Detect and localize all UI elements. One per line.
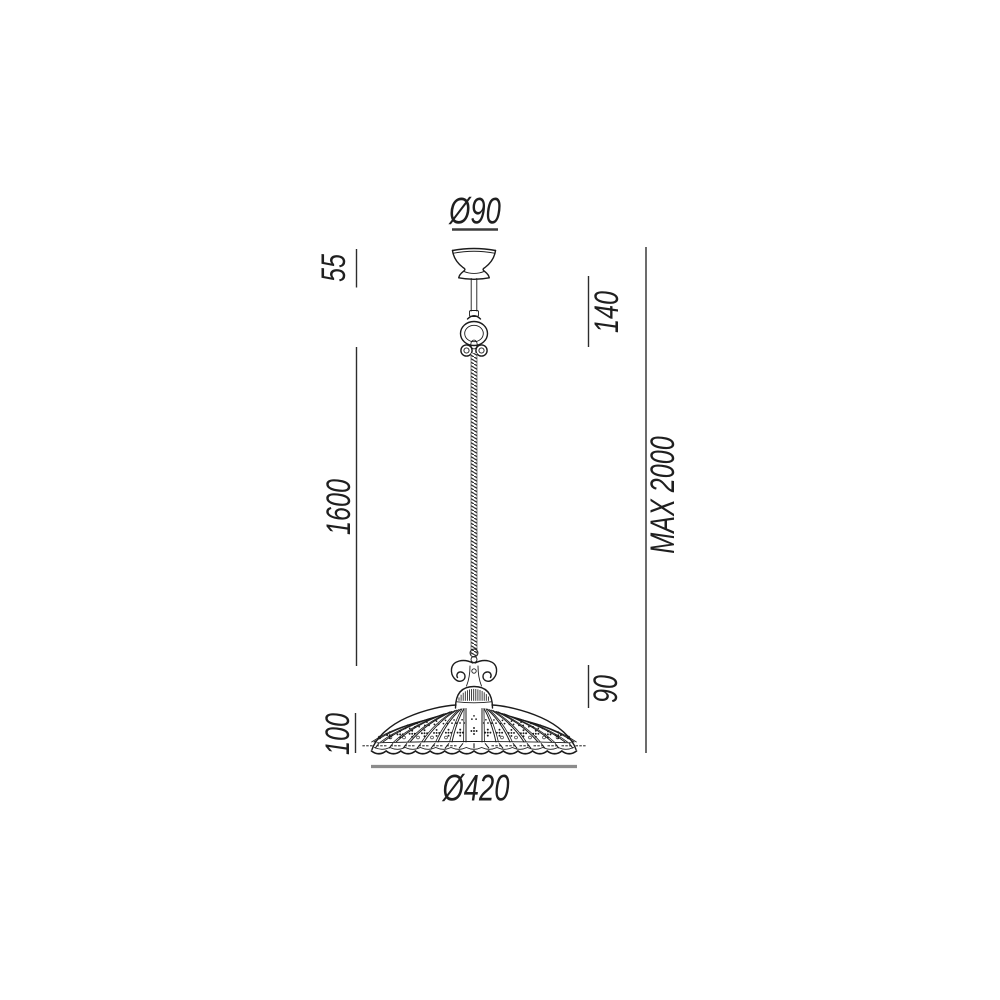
shade-ribs — [372, 709, 577, 743]
label-max-height: MAX 2000 — [644, 436, 682, 554]
shade-scalloped-edge — [372, 748, 577, 754]
lamp-shade — [362, 705, 585, 754]
shade-band-pattern — [362, 743, 585, 748]
label-shade-diameter: Ø420 — [442, 768, 510, 809]
label-suspension-upper: 140 — [588, 291, 626, 333]
label-shade-fitting-height: 90 — [587, 675, 625, 703]
shade-cap — [456, 687, 493, 709]
hanging-ring — [461, 316, 488, 356]
ceiling-canopy — [453, 249, 496, 280]
suspension-cable — [471, 353, 477, 656]
cap-hatch — [459, 689, 488, 701]
label-cable-length: 1600 — [320, 479, 358, 535]
label-canopy-height: 55 — [315, 254, 353, 282]
label-shade-height: 100 — [319, 713, 357, 755]
dimension-labels: Ø90 55 140 1600 MAX 2000 90 100 Ø420 — [315, 191, 682, 809]
technical-drawing: Ø90 55 140 1600 MAX 2000 90 100 Ø420 — [0, 0, 1000, 1000]
suspension-rod — [470, 279, 479, 317]
label-canopy-diameter: Ø90 — [448, 191, 501, 232]
